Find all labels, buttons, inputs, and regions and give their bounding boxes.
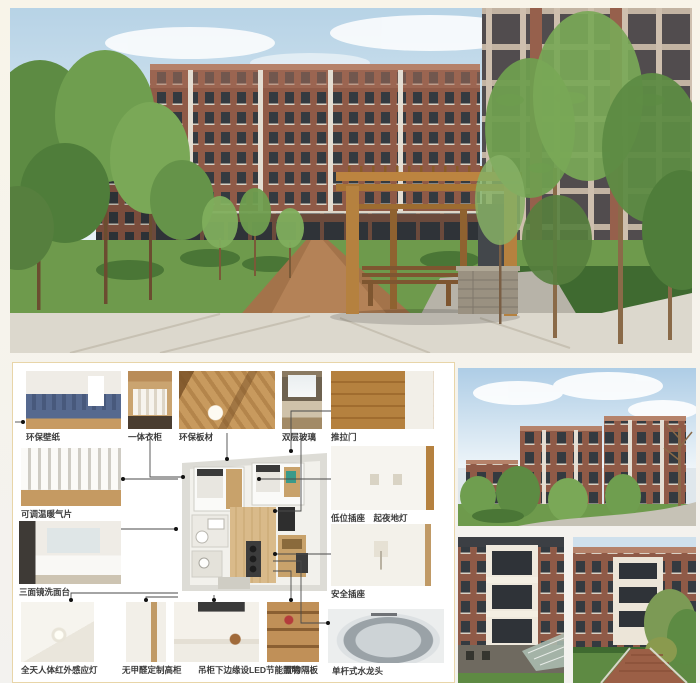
thumb-wardrobe: 一体衣柜 (128, 371, 172, 442)
floor-plan (178, 449, 331, 595)
callout-label-radiator: 可调温暖气片 (21, 509, 121, 519)
callout-label-faucet: 单杆式水龙头 (332, 666, 444, 676)
thumb-kitchen-led: 吊柜下边缘设LED节能照明 (174, 602, 259, 675)
thumb-cabinet: 无甲醛定制高柜 (126, 602, 166, 675)
thumb-safety-socket: 安全插座 (331, 524, 431, 599)
thumb-sliding-door: 推拉门 (331, 371, 434, 442)
facade-photo-left (458, 537, 564, 683)
feature-panel: 环保壁纸 一体衣柜 环保板材 双层玻璃 推拉门 可调温暖气片 低位插座 起夜地灯 (12, 362, 455, 683)
callout-label-shelf: 置物隔板 (284, 665, 319, 675)
callout-label-sliding-door: 推拉门 (331, 432, 434, 442)
thumb-glazing: 双层玻璃 (282, 371, 322, 442)
callout-label-cabinet: 无甲醛定制高柜 (122, 665, 166, 675)
thumb-radiator: 可调温暖气片 (21, 448, 121, 519)
kitchen-led-photo (174, 602, 259, 662)
thumb-shelf: 置物隔板 (267, 602, 319, 675)
page: 环保壁纸 一体衣柜 环保板材 双层玻璃 推拉门 可调温暖气片 低位插座 起夜地灯 (0, 0, 700, 683)
callout-label-low-socket: 低位插座 起夜地灯 (331, 513, 434, 523)
sliding-door-photo (331, 371, 434, 429)
cabinet-photo (126, 602, 166, 662)
bedroom-photo (26, 371, 121, 429)
low-socket-photo (331, 446, 434, 510)
stone-wall (456, 266, 520, 314)
exterior-photo-wide (458, 368, 696, 526)
thumb-board: 环保板材 (179, 371, 275, 442)
shelf-photo (267, 602, 319, 662)
vanity-photo (19, 521, 121, 584)
sensor-light-photo (21, 602, 94, 662)
callout-label-wallpaper: 环保壁纸 (26, 432, 121, 442)
callout-label-safety-socket: 安全插座 (331, 589, 431, 599)
safety-socket-photo (331, 524, 431, 586)
callout-label-led: 吊柜下边缘设LED节能照明 (198, 665, 259, 675)
callout-label-vanity: 三面镜洗面台 (19, 587, 121, 597)
faucet-photo (328, 609, 444, 663)
radiator-photo (21, 448, 121, 506)
callout-label-sensor-light: 全天人体红外感应灯 (21, 665, 94, 675)
thumb-low-socket: 低位插座 起夜地灯 (331, 446, 434, 523)
callout-label-glazing: 双层玻璃 (282, 432, 322, 442)
courtyard-illustration (10, 8, 692, 353)
board-photo (179, 371, 275, 429)
wardrobe-photo (128, 371, 172, 429)
thumb-sensor-light: 全天人体红外感应灯 (21, 602, 94, 675)
thumb-faucet: 单杆式水龙头 (328, 609, 444, 676)
thumb-bedroom: 环保壁纸 (26, 371, 121, 442)
facade-photo-right (573, 537, 696, 683)
thumb-vanity: 三面镜洗面台 (19, 521, 121, 597)
courtyard-photo (10, 8, 692, 353)
callout-label-board: 环保板材 (179, 432, 275, 442)
glazing-photo (282, 371, 322, 429)
callout-label-wardrobe: 一体衣柜 (128, 432, 172, 442)
floor-plan-drawing (178, 449, 331, 595)
